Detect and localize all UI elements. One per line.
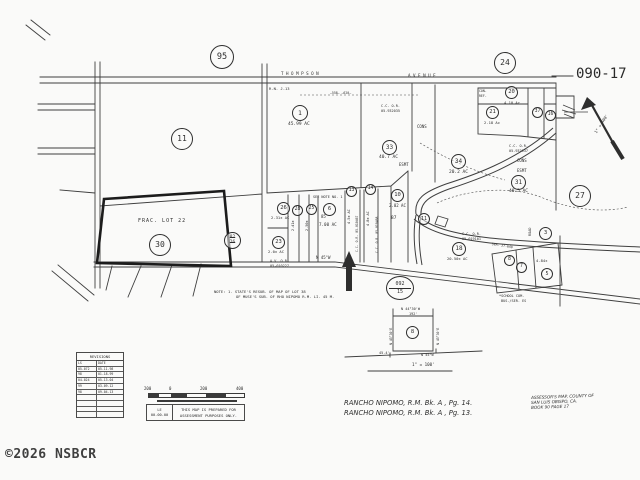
sheet-ref-circle-right: 27 [569,185,591,207]
scale-bar [148,393,245,398]
acreage-parcel-26: 2.31± AC [271,216,289,220]
block-number-85: 85 [321,215,326,219]
assessor-map-page: 95 24 27 092 15 090-17 11 1 30 82 26 26 … [0,0,640,480]
school-note-line1: *SCHOOL COM. [499,295,524,299]
disclaimer-text-cell: THIS MAP IS PREPARED FOR ASSESSMENT PURP… [173,405,244,420]
sheet-ref-circle-top-left: 95 [210,45,234,69]
revisions-title: REVISIONS [77,353,123,361]
road-dimension-marks: —558— —620— [330,92,351,95]
scale-bar-segment [171,394,187,397]
rev-cell: 99 [77,384,97,389]
inset-bearing-left: N 45°30'E [390,328,393,345]
map-ref-stamp: 092 15 [386,276,414,300]
map-number: 090-17 [576,66,627,82]
inset-bearing-top: N 44°30'W [401,308,420,312]
parcel-circle-11b: 11 [418,213,430,225]
rev-cell [97,412,123,417]
rev-cell [77,407,97,412]
scalebar-label-2: 200 [200,387,207,391]
esmt-label-1: ESMT [399,163,409,167]
inset-dim-left: 45.4' [379,352,390,356]
parcel-circle-37: 37 [532,107,543,118]
con-ref-line2: REF- [479,95,487,98]
inset-bearing-bottom: N 45°W [421,354,434,358]
acreage-parcel-6: 7.00 AC [319,223,337,227]
rev-cell: 98 [77,372,97,377]
road-label-thompson: THOMPSON [281,72,321,76]
scalebar-label-0: 200 [144,387,151,391]
footer-rancho-line2: RANCHO NIPOMO, R.M. Bk. A , Pg. 13. [344,410,472,417]
or-ref-1-line2: 05-932035 [381,110,400,114]
parcel-circle-10: 10 [391,189,404,202]
copyright-watermark: ©2026 NSBCR [5,447,97,462]
rev-cell [77,412,97,417]
revisions-row-empty [77,412,123,417]
parcel-circle-11: 11 [171,128,193,150]
stamp-bottom-number: 15 [397,289,403,295]
road-label-avenue: AVENUE [408,74,438,78]
inset-dim-top: 192' [409,313,417,317]
rev-cell: 05-072 [77,367,97,372]
disclaimer-line2: ASSESSMENT PURPOSES ONLY. [180,413,237,418]
see-note-label: SEE NOTE NO. 1 [313,196,343,200]
parcel-circle-cancelled: 82 26 [224,232,241,249]
parcel-circle-34: 34 [451,154,466,169]
parcel-circle-14: 14 [365,184,376,195]
scalebar-label-3: 400 [236,387,243,391]
note-line-2: OF MUSE'S SUB. OF RHO NIPOMO R.M. LI. 45… [236,295,334,299]
acreage-parcel-34: 20.2 AC [449,171,468,176]
road-label-vertical: ROAD [529,228,533,236]
cancelled-number-bottom: 26 [230,241,235,246]
disclaimer-date: 00-00-00 [151,413,168,418]
acreage-parcel-21: 2.18 Ac [484,121,500,125]
or-ref-5-vertical: C.C. O.R. 05-010467 [356,216,359,252]
parcel-circle-30: 30 [149,234,171,256]
parcel-circle-18: 18 [452,242,466,256]
scale-bar-secondary [157,400,237,403]
rev-cell: 98 [77,390,97,395]
inset-parcel-circle-8: 8 [406,326,419,339]
rev-cell: 01-18-99 [97,372,123,377]
rev-cell: 05-11-98 [97,367,123,372]
revisions-table: REVISIONS LS DATE 05-072 05-11-98 98 01-… [76,352,124,418]
or-ref-6-vertical: C.C. O.R. 05-010468 [376,217,379,253]
note-label: NOTE: [214,290,225,294]
rev-cell: 05-13-04 [97,378,123,383]
or-ref-2-line2: 05-932937 [509,150,528,154]
or-ref-3-line1: C.C. O.R. [462,233,481,237]
rev-cell: 04-024 [77,378,97,383]
acreage-parcel-23: 2.0± AC [268,250,284,254]
school-note-line2: BUS./SER. ES [501,300,526,304]
acreage-parcel-1: 45.99 AC [288,123,310,128]
rev-cell [77,401,97,406]
sheet-ref-circle-top-right: 24 [494,52,516,74]
or-ref-4-line2: 05-010227 [270,265,289,269]
rev-cell: 03-09-12 [97,384,123,389]
north-arrow-icon [562,97,623,159]
scale-bar-segment [206,394,226,397]
revisions-col-date: DATE [97,361,123,366]
scalebar-label-1: 0 [169,387,171,391]
stamp-top-number: 092 [395,281,404,287]
acreage-parcel-20: 4.10 Ac [504,101,520,105]
or-ref-4-line1: A.V. O.R. [270,260,289,264]
acreage-parcel-14: 4.8± AC [367,211,371,226]
parcel-circle-16: 16 [545,110,556,121]
scale-bar-segment [149,394,159,397]
cons-label-2: CONS [517,159,527,163]
footer-rancho-line1: RANCHO NIPOMO, R.M. Bk. A , Pg. 14. [344,400,472,407]
acreage-parcel-10: 2.02 AC [389,204,406,208]
scale-bar-segment [158,401,168,402]
cons-label-1: CONS [417,125,427,129]
parcel-circle-31: 31 [511,175,526,190]
rev-cell [77,395,97,400]
rev-cell: 09-04-13 [97,390,123,395]
bearing-label-n45w: N 45°W [316,256,330,260]
or-ref-3-line2: 05-019101 [462,238,481,242]
acreage-parcel-25: 2.50± [306,220,310,231]
parcel-circle-21: 21 [486,106,499,119]
road-record-ref: R.N. J-13 [269,87,290,91]
parcel-circle-25: 25 [306,204,317,215]
rev-cell [97,401,123,406]
parcel-circle-1: 1 [292,105,308,121]
revisions-col-ls: LS [77,361,97,366]
inset-scale-label: 1" = 100' [412,363,435,367]
disclaimer-initials-cell: LE 00-00-00 [147,405,173,420]
acreage-parcel-28: 2.41± [292,220,296,231]
up-arrow [342,251,356,291]
inset-bearing-right: N 45°30'E [437,328,440,345]
parcel-circle-23: 23 [272,236,285,249]
acreage-parcel-18: 20.50± AC [447,257,468,261]
parcel-circle-20: 20 [505,86,518,99]
or-ref-1-line1: C.C. O.R. [381,105,400,109]
disclaimer-box: LE 00-00-00 THIS MAP IS PREPARED FOR ASS… [146,404,245,421]
block-number-87: 87 [391,217,396,222]
esmt-label-2: ESMT [517,169,527,173]
parcel-circle-13: 13 [346,186,357,197]
acreage-parcel-5: 4.84± [536,259,547,263]
parcel-circle-5: 5 [541,268,553,280]
parcel-circle-8: 8 [504,255,515,266]
parcel-circle-26: 26 [277,202,290,215]
rev-cell [97,407,123,412]
parcel-circle-28: 28 [292,205,303,216]
acreage-parcel-31: 40.5 AC [509,190,528,195]
con-ref-line1: CON- [479,90,487,93]
parcel-circle-7: 7 [516,262,527,273]
frac-lot-label: FRAC. LOT 22 [138,219,186,224]
or-ref-2-line1: C.C. O.R. [509,145,528,149]
parcel-circle-33: 33 [382,140,397,155]
parcel-circle-3: 3 [539,227,552,240]
acreage-parcel-13: 4.5± AC [348,209,352,224]
rev-cell [97,395,123,400]
acreage-parcel-33: 40.7 AC [379,156,398,161]
